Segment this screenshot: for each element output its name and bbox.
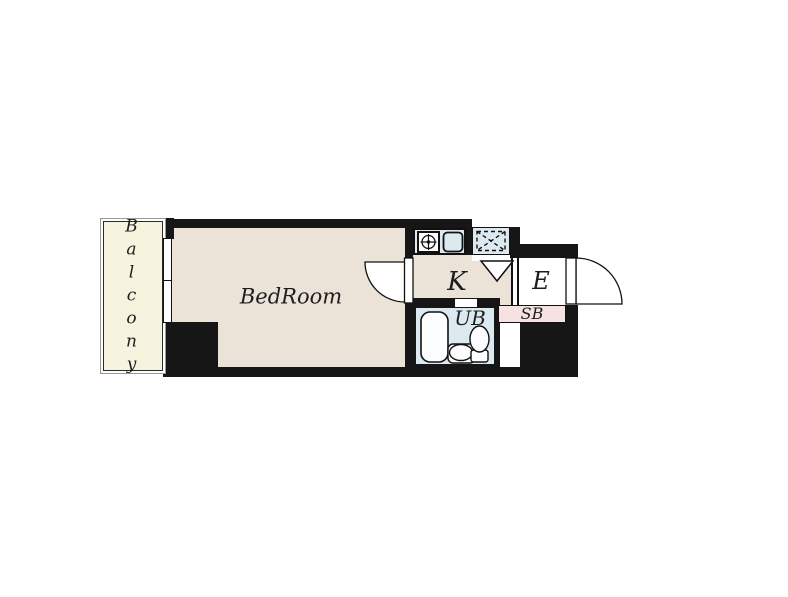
bathtub-icon xyxy=(421,312,448,362)
balcony-label: Balcony xyxy=(123,217,140,378)
floor-plan: Balcony BedRoom K E UB SB xyxy=(0,0,788,597)
refrigerator-hatch xyxy=(477,232,505,251)
bedroom-label: BedRoom xyxy=(240,287,342,308)
triangle-marker-icon xyxy=(481,261,513,281)
entrance-label: E xyxy=(532,269,550,293)
shoe-box-label: SB xyxy=(521,306,544,322)
toilet-icon xyxy=(470,326,489,362)
unit-bath-label: UB xyxy=(454,308,486,328)
gas-stove-icon xyxy=(418,232,439,252)
room-door-swing-icon xyxy=(365,258,413,303)
kitchen-sink-icon xyxy=(444,233,463,252)
kitchen-label: K xyxy=(447,269,466,295)
fixtures-overlay xyxy=(0,0,788,597)
entrance-door-swing-icon xyxy=(566,258,622,304)
